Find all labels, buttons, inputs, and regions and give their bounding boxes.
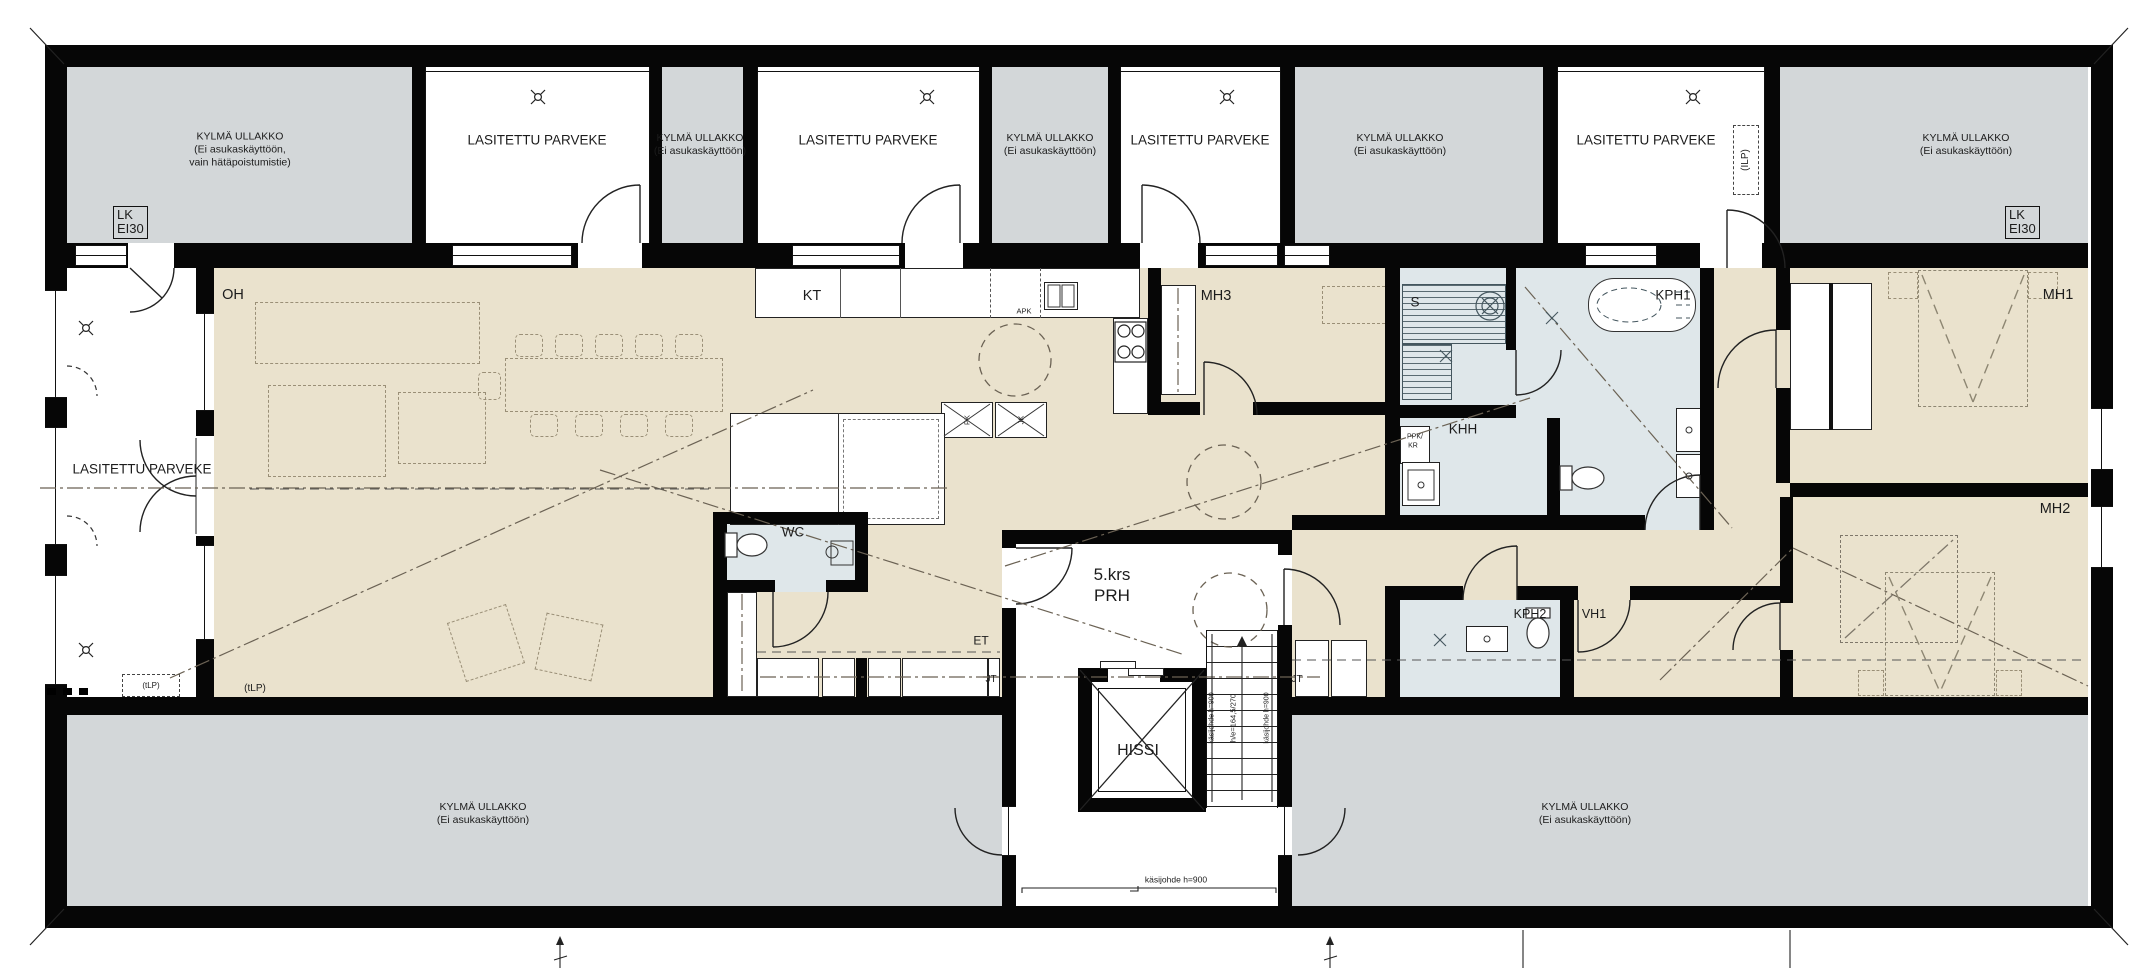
- door-opening: [196, 436, 214, 536]
- handrail-label: käsijohde h=900: [1264, 692, 1273, 743]
- wall: [1547, 418, 1560, 530]
- room-label-mh1: MH1: [2043, 286, 2074, 304]
- room-label-mh3: MH3: [1201, 287, 1232, 305]
- window: [2091, 506, 2113, 568]
- armchair: [268, 385, 386, 477]
- room-label-et: ET: [973, 634, 988, 649]
- window: [2091, 408, 2113, 470]
- wall: [1385, 268, 1400, 530]
- wall: [1108, 45, 1120, 268]
- attic-label-line: KYLMÄ ULLAKKO: [1354, 132, 1446, 145]
- apk-divider: [990, 268, 991, 318]
- window: [1205, 245, 1278, 266]
- attic-label: KYLMÄ ULLAKKO (Ei asukaskäyttöön): [1539, 801, 1631, 827]
- wall-top-main: [67, 243, 2088, 268]
- door-opening: [1700, 243, 1762, 268]
- kph2-basin: [1466, 626, 1508, 652]
- wall: [1780, 650, 1793, 697]
- window: [1002, 806, 1016, 856]
- attic-label-line: KYLMÄ ULLAKKO: [189, 130, 291, 143]
- attic-label: KYLMÄ ULLAKKO (Ei asukaskäyttöön): [1354, 132, 1446, 158]
- sauna-bench: [1402, 344, 1452, 400]
- riser-label: h/e=164,5/270: [1228, 694, 1237, 742]
- tlp-label: (tLP): [142, 681, 159, 691]
- mh1-bed: [1918, 270, 2028, 407]
- et-closet: [902, 658, 988, 697]
- room-label-vh1: VH1: [1582, 607, 1606, 623]
- window: [792, 245, 900, 266]
- wall: [1148, 402, 1200, 415]
- et-closet: [757, 658, 819, 697]
- dining-chair: [665, 414, 693, 437]
- elevator-shaft-wall: [1078, 668, 1092, 812]
- tlp-label: (tLP): [244, 683, 266, 696]
- wall: [1560, 515, 1645, 530]
- jt-marker: JT: [1291, 674, 1302, 687]
- counter-divider: [840, 268, 841, 318]
- counter-divider: [900, 268, 901, 318]
- wall: [1506, 268, 1516, 350]
- attic-label-line: (Ei asukaskäyttöön): [437, 814, 529, 827]
- nightstand: [1888, 272, 1918, 299]
- attic-label-line: KYLMÄ ULLAKKO: [1539, 801, 1631, 814]
- door-opening: [128, 243, 174, 268]
- balcony-top-4-glassline: [1557, 71, 1765, 72]
- ilp-label: (ILP): [1740, 149, 1753, 171]
- wall: [1560, 586, 1574, 697]
- balcony-label: LASITETTU PARVEKE: [1130, 133, 1269, 150]
- attic-label-line: KYLMÄ ULLAKKO: [1004, 132, 1096, 145]
- jk-label: JK: [1016, 416, 1025, 425]
- dining-chair: [575, 414, 603, 437]
- attic-label: KYLMÄ ULLAKKO (Ei asukaskäyttöön): [1004, 132, 1096, 158]
- dining-chair: [595, 334, 623, 357]
- dining-chair: [675, 334, 703, 357]
- stair-core-wall: [1002, 608, 1016, 806]
- elevator-cab: [1098, 688, 1186, 792]
- handrail-label: käsijohde h=900: [1209, 692, 1218, 743]
- nightstand: [1996, 670, 2022, 696]
- attic-label-line: vain hätäpoistumistie): [189, 157, 291, 170]
- dining-chair: [530, 414, 558, 437]
- room-label-sauna: S: [1410, 295, 1419, 312]
- outer-wall-top: [45, 45, 2113, 67]
- mh3-wardrobe: [1161, 285, 1196, 395]
- entry-closet: [1295, 640, 1329, 697]
- bathtub: [1588, 278, 1696, 332]
- stove-counter: [1113, 318, 1148, 414]
- room-label-kt: KT: [803, 287, 822, 305]
- khh-sink: [1402, 462, 1440, 506]
- wall: [1630, 586, 1780, 600]
- wall: [1780, 497, 1793, 603]
- attic-label-emergency: KYLMÄ ULLAKKO (Ei asukaskäyttöön, vain h…: [189, 130, 291, 169]
- wall: [1700, 268, 1714, 530]
- entry-closet: [1331, 640, 1367, 697]
- handrail-label: käsijohde h=900: [1145, 875, 1207, 886]
- wall-bottom-main: [67, 697, 1002, 715]
- wall-bottom-main: [1292, 697, 2088, 715]
- attic-label-line: KYLMÄ ULLAKKO: [1920, 132, 2012, 145]
- lounge-chair: [535, 613, 604, 682]
- kitchen-sink: [1044, 282, 1078, 310]
- window: [1585, 245, 1657, 266]
- dining-chair: [555, 334, 583, 357]
- room-label-wc: WC: [782, 525, 805, 542]
- attic-label: KYLMÄ ULLAKKO (Ei asukaskäyttöön): [654, 132, 746, 158]
- island-divider: [838, 413, 839, 525]
- kr-label: KR: [1408, 443, 1418, 452]
- wall: [713, 580, 775, 592]
- balcony-top-2-glassline: [757, 71, 980, 72]
- dining-chair: [635, 334, 663, 357]
- dining-table: [505, 358, 723, 412]
- elevator-label: HISSI: [1117, 741, 1159, 761]
- attic-label-line: (Ei asukaskäyttöön): [1004, 145, 1096, 158]
- duct-shaft: [727, 592, 757, 697]
- wall: [826, 580, 868, 592]
- balcony-top-3-glassline: [1120, 71, 1281, 72]
- wall: [1400, 515, 1560, 530]
- wall: [1292, 515, 1390, 530]
- stair-core-wall: [1278, 625, 1292, 806]
- ppk-label: PPK/: [1407, 434, 1423, 443]
- attic-label: KYLMÄ ULLAKKO (Ei asukaskäyttöön): [437, 801, 529, 827]
- dining-chair: [515, 334, 543, 357]
- room-label-khh: KHH: [1449, 422, 1478, 439]
- balcony-glazing: [45, 290, 67, 398]
- attic-label-line: (Ei asukaskäyttöön): [654, 145, 746, 158]
- room-label-kph1: KPH1: [1655, 288, 1690, 305]
- window: [75, 245, 127, 266]
- wall: [412, 45, 425, 268]
- mh1-wardrobe-divider: [1829, 283, 1833, 430]
- balcony-label: LASITETTU PARVEKE: [72, 462, 211, 479]
- jt-marker: JT: [985, 674, 996, 687]
- balcony-left: [67, 268, 196, 697]
- dining-chair: [478, 372, 501, 400]
- wall: [1281, 45, 1295, 268]
- fire-hatch-box: LK EI30: [2005, 206, 2040, 239]
- wall: [1400, 586, 1463, 600]
- apk-divider: [1040, 268, 1041, 318]
- stair-core-wall: [1278, 856, 1292, 906]
- room-label-mh2: MH2: [2040, 500, 2071, 518]
- sauna-bench: [1402, 284, 1506, 344]
- fire-hatch-line: EI30: [117, 222, 144, 236]
- attic-label-line: KYLMÄ ULLAKKO: [654, 132, 746, 145]
- window: [1284, 245, 1330, 266]
- elevator-shaft-wall: [1078, 798, 1206, 812]
- kph1-basin: [1676, 408, 1702, 452]
- wall: [1776, 268, 1790, 330]
- stair-core-wall: [1002, 530, 1292, 544]
- wall: [1543, 45, 1557, 268]
- closet-divider-wall: [856, 658, 867, 697]
- apk-label: APK: [1016, 306, 1031, 315]
- outer-wall-bottom: [45, 906, 2113, 928]
- wall: [713, 512, 868, 524]
- elevator-shaft-wall: [1078, 668, 1108, 682]
- dining-chair: [620, 414, 648, 437]
- attic-label-line: (Ei asukaskäyttöön,: [189, 143, 291, 156]
- mh2-bed: [1885, 572, 1995, 696]
- wall: [1148, 268, 1161, 415]
- kph1-basin: [1676, 454, 1702, 498]
- et-closet: [822, 658, 855, 697]
- balcony-railing-dash: [47, 688, 95, 695]
- attic-label-line: (Ei asukaskäyttöön): [1920, 145, 2012, 158]
- outer-wall-right: [2091, 45, 2113, 928]
- wall: [1253, 402, 1387, 415]
- wall: [980, 45, 992, 268]
- fire-hatch-box: LK EI30: [113, 206, 148, 239]
- stairwell-label: 5.krs PRH: [1094, 564, 1131, 607]
- coffee-table: [398, 392, 486, 464]
- stair-core-wall: [1002, 856, 1016, 906]
- wall: [1400, 405, 1516, 418]
- elevator-shaft-wall: [1160, 668, 1206, 682]
- stairwell-name: PRH: [1094, 585, 1131, 606]
- pk-label: PK: [962, 415, 971, 425]
- wall: [1776, 388, 1790, 483]
- attic-label-line: (Ei asukaskäyttöön): [1539, 814, 1631, 827]
- window: [452, 245, 572, 266]
- fire-hatch-line: LK: [2009, 208, 2036, 222]
- balcony-top-1-glassline: [425, 71, 650, 72]
- attic-label-line: KYLMÄ ULLAKKO: [437, 801, 529, 814]
- window: [196, 313, 214, 411]
- window: [1278, 806, 1292, 856]
- balcony-label: LASITETTU PARVEKE: [798, 133, 937, 150]
- balcony-glazing: [45, 575, 67, 685]
- fire-hatch-line: LK: [117, 208, 144, 222]
- wall: [713, 512, 727, 697]
- balcony-label: LASITETTU PARVEKE: [467, 133, 606, 150]
- floor-plan: KYLMÄ ULLAKKO (Ei asukaskäyttöön, vain h…: [0, 0, 2149, 970]
- attic-label-line: (Ei asukaskäyttöön): [1354, 145, 1446, 158]
- attic-label: KYLMÄ ULLAKKO (Ei asukaskäyttöön): [1920, 132, 2012, 158]
- balcony-glazing: [45, 427, 67, 545]
- door-opening: [1140, 243, 1198, 268]
- island-dashed-zone: [843, 419, 939, 519]
- door-opening: [905, 243, 963, 268]
- stair-core-wall: [1002, 530, 1016, 548]
- wall: [1385, 586, 1400, 712]
- et-closet: [868, 658, 901, 697]
- wall: [1790, 483, 2088, 497]
- door-opening: [578, 243, 642, 268]
- nightstand: [1858, 670, 1884, 696]
- wall: [1765, 45, 1780, 268]
- elevator-shaft-wall: [1192, 668, 1206, 812]
- sofa: [255, 302, 480, 364]
- stairwell-floor-no: 5.krs: [1094, 564, 1131, 585]
- window: [196, 545, 214, 640]
- elevator-sliding-door: [1128, 668, 1164, 676]
- stair-core-wall: [1278, 530, 1292, 555]
- room-label-oh: OH: [222, 286, 244, 304]
- room-label-kph2: KPH2: [1514, 607, 1547, 623]
- fire-hatch-line: EI30: [2009, 222, 2036, 236]
- attic-bottom-right: [1292, 715, 2088, 906]
- balcony-label: LASITETTU PARVEKE: [1576, 133, 1715, 150]
- attic-bottom-left: [67, 715, 1002, 906]
